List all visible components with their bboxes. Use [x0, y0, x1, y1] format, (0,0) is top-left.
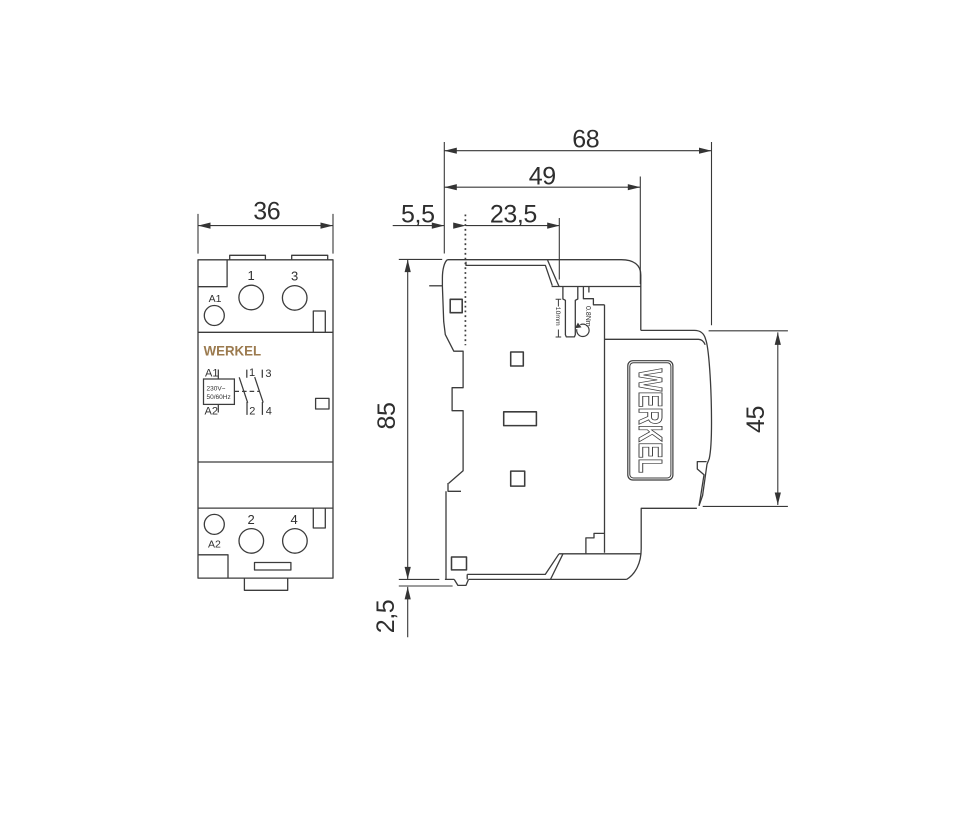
svg-text:4: 4	[266, 405, 272, 417]
svg-text:A1: A1	[205, 367, 218, 379]
svg-text:68: 68	[572, 126, 599, 154]
svg-text:2: 2	[248, 512, 255, 527]
svg-text:85: 85	[373, 402, 401, 429]
svg-text:2,5: 2,5	[372, 600, 400, 634]
svg-text:5,5: 5,5	[401, 200, 435, 228]
svg-text:WERKEL: WERKEL	[632, 369, 669, 474]
svg-text:0.8Nm: 0.8Nm	[584, 306, 591, 327]
svg-text:49: 49	[529, 163, 556, 191]
svg-text:1: 1	[249, 367, 255, 379]
svg-text:230V~: 230V~	[207, 386, 226, 393]
svg-text:A2: A2	[205, 406, 218, 418]
svg-text:10mm: 10mm	[554, 307, 561, 326]
svg-text:3: 3	[265, 368, 271, 380]
svg-text:4: 4	[291, 512, 298, 527]
svg-text:23,5: 23,5	[490, 200, 537, 228]
svg-text:1: 1	[248, 268, 255, 283]
svg-text:3: 3	[291, 269, 298, 284]
svg-text:A2: A2	[208, 539, 221, 551]
svg-text:45: 45	[742, 406, 770, 433]
svg-text:2: 2	[249, 405, 255, 417]
svg-text:36: 36	[253, 198, 280, 226]
svg-text:50/60Hz: 50/60Hz	[207, 394, 231, 401]
svg-text:WERKEL: WERKEL	[204, 343, 262, 359]
svg-text:A1: A1	[209, 293, 222, 305]
